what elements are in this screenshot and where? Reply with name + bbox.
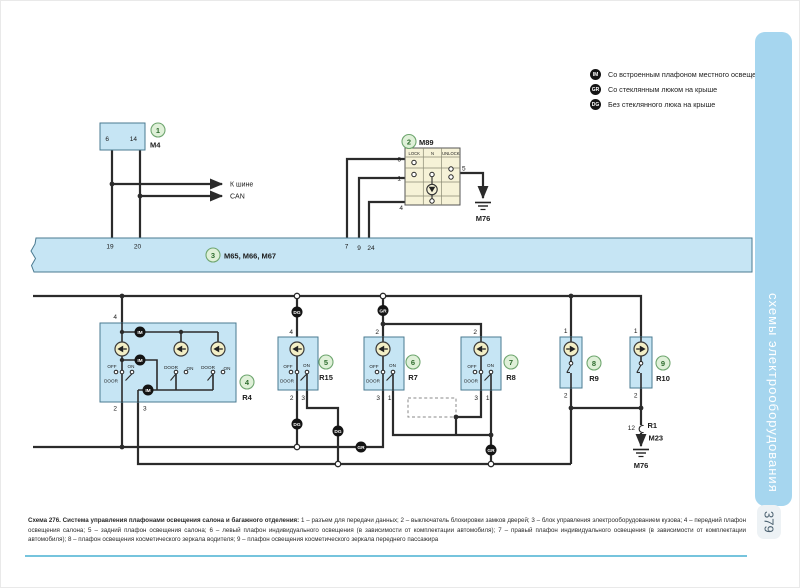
ground-symbol-top [475, 203, 491, 210]
can-label-2: CAN [230, 194, 245, 201]
m89-pin-6: 6 [397, 157, 401, 164]
dg-badge-icon: DG [590, 99, 601, 110]
r9-pin-top: 1 [564, 328, 568, 335]
r10-passenger-vanity-lamp: 1 2 9 R10 [630, 328, 670, 400]
m89-pin-5: 5 [462, 166, 466, 173]
r1-pin-12: 12 [628, 425, 636, 432]
legend-item-dg: DG Без стеклянного люка на крыше [590, 99, 768, 110]
legend-text-gr: Со стеклянным люком на крыше [608, 85, 717, 94]
r1-m23-connector-ground: 12 R1 M23 M76 [628, 421, 663, 470]
callout-3: 3 [206, 248, 220, 262]
callout-1: 1 [151, 123, 165, 137]
legend-text-im: Со встроенным плафоном местного освещени… [608, 70, 768, 79]
r4-front-dome-lamp: IM IM IM OFF ON DOOR DOOR ON DOOR ON 4 2… [100, 314, 254, 413]
config-badge-dg-2: DG [292, 419, 303, 430]
r9-pin-bottom: 2 [564, 393, 568, 400]
r4-off-label: OFF [107, 364, 116, 369]
gr-badge-icon: GR [590, 84, 601, 95]
r15-on-label: ON [303, 363, 310, 368]
svg-text:9: 9 [661, 359, 665, 368]
r10-lamp [634, 342, 648, 356]
r8-lamp [474, 342, 488, 356]
side-tab-label: схемы электрооборудования [766, 293, 781, 493]
svg-text:1: 1 [156, 126, 160, 135]
callout-8: 8 [587, 356, 601, 370]
page-number-text: 379 [762, 511, 777, 533]
r7-pin-top: 2 [375, 329, 379, 336]
r8-door-label: DOOR [464, 379, 478, 384]
config-badge-dg-1: DG [292, 307, 303, 318]
m4-ref: M4 [150, 141, 161, 150]
r4-on2-label: ON [187, 366, 194, 371]
caption-rule [25, 555, 747, 557]
config-badge-gr-3: GR [486, 445, 497, 456]
m89-col-unlock: UNLOCK [442, 151, 460, 156]
m89-indicator-lamp [427, 184, 437, 194]
r4-on3-label: ON [224, 366, 231, 371]
r7-on-label: ON [389, 363, 396, 368]
config-badge-im-3: IM [143, 385, 154, 396]
r8-pin-right: 1 [486, 395, 490, 402]
r4-door2-label: DOOR [164, 365, 178, 370]
can-bus-arrows: К шине CAN [110, 182, 254, 201]
r4-ref: R4 [242, 393, 252, 402]
r7-lamp [376, 342, 390, 356]
r7-off-label: OFF [369, 364, 378, 369]
r7-pin-left: 3 [376, 395, 380, 402]
r8-off-label: OFF [467, 364, 476, 369]
optional-link-dashed-box [408, 398, 456, 417]
r4-pin-4: 4 [113, 314, 117, 321]
svg-text:IM: IM [145, 388, 150, 394]
m4-pin-14: 14 [130, 136, 138, 143]
m89-door-lock-switch: M76 LOCK N UNLOCK 6 1 5 4 2 M89 [347, 135, 491, 239]
r9-driver-vanity-lamp: 1 2 8 R9 [560, 328, 601, 400]
ground-symbol-bottom [633, 450, 649, 457]
svg-text:GR: GR [487, 448, 495, 454]
legend-text-dg: Без стеклянного люка на крыше [608, 100, 715, 109]
figure-caption: Схема 276. Система управления плафонами … [28, 516, 746, 545]
callout-7: 7 [504, 355, 518, 369]
r8-right-map-lamp: OFF ON DOOR 2 3 1 7 R8 [461, 329, 518, 402]
m76-top-label: M76 [476, 214, 491, 223]
inline-connector-symbol [639, 425, 643, 432]
r4-lamp-3 [211, 342, 225, 356]
bus-pin-9: 9 [357, 245, 361, 252]
r10-pin-bottom: 2 [634, 393, 638, 400]
r15-pin-left: 2 [290, 395, 294, 402]
config-legend: IM Со встроенным плафоном местного освещ… [590, 69, 768, 110]
bus-pin-20: 20 [134, 244, 142, 251]
r15-rear-dome-lamp: OFF ON DOOR 4 2 3 5 R15 [278, 329, 333, 402]
svg-text:2: 2 [407, 137, 411, 146]
config-badge-gr-1: GR [378, 305, 389, 316]
r10-ref: R10 [656, 374, 670, 383]
r10-pin-top: 1 [634, 328, 638, 335]
callout-5: 5 [319, 355, 333, 369]
svg-text:5: 5 [324, 358, 328, 367]
chapter-side-tab: схемы электрооборудования [755, 32, 792, 506]
r4-lamp-1 [115, 342, 129, 356]
legend-item-im: IM Со встроенным плафоном местного освещ… [590, 69, 768, 80]
manual-page: 6 14 1 M4 К шине CAN M76 LOCK N UNLOCK [0, 0, 800, 588]
r15-ref: R15 [319, 373, 333, 382]
r4-door-label: DOOR [104, 379, 118, 384]
bus-pin-24: 24 [367, 245, 375, 252]
svg-text:IM: IM [137, 330, 142, 336]
callout-2: 2 [402, 135, 416, 149]
config-badge-im-1: IM [135, 327, 146, 338]
body-control-bus-bar: 19 20 7 9 24 3 M65, M66, M67 [31, 238, 752, 272]
r7-pin-right: 1 [388, 395, 392, 402]
r8-pin-left: 3 [474, 395, 478, 402]
m4-pin-6: 6 [105, 136, 109, 143]
m76-bottom-label: M76 [634, 461, 649, 470]
r9-ref: R9 [589, 374, 599, 383]
bus-ref: M65, M66, M67 [224, 252, 276, 261]
legend-item-gr: GR Со стеклянным люком на крыше [590, 84, 768, 95]
m89-pin-1: 1 [397, 176, 401, 183]
svg-text:3: 3 [211, 251, 215, 260]
m89-pin-4: 4 [399, 205, 403, 212]
r1-ref: R1 [648, 421, 658, 430]
r8-ref: R8 [506, 373, 516, 382]
r15-lamp [290, 342, 304, 356]
r8-on-label: ON [487, 363, 494, 368]
config-badge-gr-2: GR [356, 442, 367, 453]
m89-col-lock: LOCK [408, 151, 420, 156]
svg-text:7: 7 [509, 358, 513, 367]
r4-pin-2: 2 [113, 406, 117, 413]
svg-text:IM: IM [137, 358, 142, 364]
page-number: 379 [757, 505, 781, 539]
r9-lamp [564, 342, 578, 356]
svg-text:DG: DG [293, 310, 300, 316]
r15-pin-top: 4 [289, 329, 293, 336]
im-badge-icon: IM [590, 69, 601, 80]
r15-pin-right: 3 [301, 395, 305, 402]
m89-ref: M89 [419, 138, 434, 147]
svg-text:GR: GR [379, 308, 387, 314]
r4-on-label: ON [128, 364, 135, 369]
m23-ref: M23 [649, 434, 664, 443]
svg-text:DG: DG [293, 422, 300, 428]
callout-6: 6 [406, 355, 420, 369]
svg-text:6: 6 [411, 358, 415, 367]
callout-4: 4 [240, 375, 254, 389]
config-badge-im-2: IM [135, 355, 146, 366]
m89-col-n: N [431, 151, 434, 156]
m4-data-connector: 6 14 1 M4 [100, 123, 165, 238]
callout-9: 9 [656, 356, 670, 370]
bus-pin-7: 7 [345, 244, 349, 251]
r8-pin-top: 2 [473, 329, 477, 336]
config-badge-dg-3: DG [333, 426, 344, 437]
caption-lead: Схема 276. Система управления плафонами … [28, 517, 299, 524]
svg-text:8: 8 [592, 359, 596, 368]
bus-pin-19: 19 [106, 244, 114, 251]
r15-door-label: DOOR [280, 379, 294, 384]
r15-off-label: OFF [283, 364, 292, 369]
svg-text:DG: DG [334, 429, 341, 435]
svg-text:GR: GR [357, 445, 365, 451]
can-label-1: К шине [230, 182, 253, 189]
r4-pin-3: 3 [143, 406, 147, 413]
r7-door-label: DOOR [366, 379, 380, 384]
r4-lamp-2 [174, 342, 188, 356]
r7-ref: R7 [408, 373, 418, 382]
r4-door3-label: DOOR [201, 365, 215, 370]
